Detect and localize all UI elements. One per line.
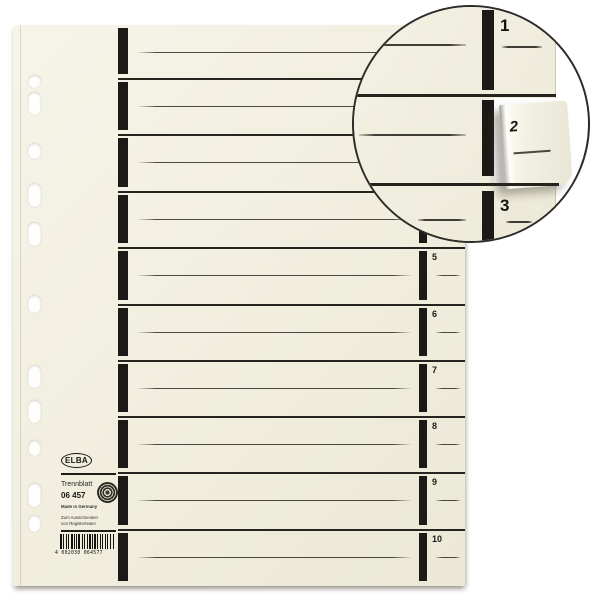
tab-label-line <box>436 444 460 445</box>
tab-number: 5 <box>432 253 437 262</box>
brand-logo: ELBA <box>61 453 92 468</box>
quality-seal-icon <box>97 482 118 503</box>
magnified-tab-bar-3 <box>482 191 494 243</box>
tab-label-line <box>436 388 460 389</box>
writing-line <box>137 332 412 333</box>
oblong-punch-hole <box>28 143 41 159</box>
oblong-punch-hole <box>28 92 41 115</box>
section-rule <box>118 529 465 531</box>
oblong-punch-hole <box>28 365 41 388</box>
writing-line <box>137 444 412 445</box>
print-divider-line-top <box>61 473 116 475</box>
peeled-tab-line <box>513 150 550 154</box>
left-tab-bar <box>118 82 128 130</box>
tab-number: 6 <box>432 310 437 319</box>
article-number: 06 457 <box>61 491 85 500</box>
round-punch-hole <box>28 515 41 532</box>
section-rule <box>118 247 465 249</box>
right-tab-bar <box>419 251 427 300</box>
section-rule <box>118 304 465 306</box>
left-tab-bar <box>118 138 128 187</box>
peeled-tab: 2 <box>499 101 573 190</box>
left-tab-bar <box>118 420 128 468</box>
peeled-tab-number-2: 2 <box>509 119 518 135</box>
round-punch-hole <box>28 440 41 456</box>
barcode <box>60 534 115 549</box>
left-tab-bar <box>118 476 128 525</box>
right-tab-bar <box>419 308 427 356</box>
right-tab-bar <box>419 476 427 525</box>
oblong-punch-hole <box>28 222 41 246</box>
magnified-writing-line <box>359 134 466 136</box>
oblong-punch-hole <box>28 400 41 423</box>
left-tab-bar <box>118 195 128 243</box>
writing-line <box>137 388 412 389</box>
brand-logo-text: ELBA <box>65 456 88 465</box>
right-tab-bar <box>419 420 427 468</box>
tab-number: 10 <box>432 535 442 544</box>
left-tab-bar <box>118 308 128 356</box>
magnified-tab-line-3 <box>506 221 532 223</box>
barcode-number: 4 002030 064577 <box>55 550 103 555</box>
product-name: Trennblatt <box>61 481 92 488</box>
magnified-writing-line <box>418 219 466 221</box>
origin-text: Made in Germany <box>61 505 97 509</box>
print-divider-line-bottom <box>61 530 116 532</box>
barcode-bar <box>113 534 114 549</box>
right-tab-bar <box>419 533 427 581</box>
writing-line <box>137 500 412 501</box>
section-rule <box>118 472 465 474</box>
oblong-punch-hole <box>28 183 41 207</box>
magnifier-circle: 1 2 3 <box>352 5 590 243</box>
magnified-tab-bar-1 <box>482 10 494 90</box>
left-tab-bar <box>118 28 128 74</box>
product-photo-stage: 12345678910 ELBA Trennblatt 06 457 Made … <box>0 0 600 600</box>
round-punch-hole <box>28 75 41 88</box>
writing-line <box>137 557 412 558</box>
usage-note-line1: Zum Ausschneiden <box>61 516 98 520</box>
oblong-punch-hole <box>28 295 41 313</box>
right-tab-bar <box>419 364 427 412</box>
magnified-section-rule-1 <box>354 94 556 97</box>
tab-number: 9 <box>432 478 437 487</box>
usage-note-line2: von Registerteilen <box>61 522 96 526</box>
magnified-tab-bar-2 <box>482 100 494 176</box>
tab-number: 7 <box>432 366 437 375</box>
magnified-tab-line-1 <box>502 46 542 48</box>
tab-label-line <box>436 332 460 333</box>
left-tab-bar <box>118 364 128 412</box>
magnified-tab-number-1: 1 <box>500 17 509 34</box>
left-tab-bar <box>118 251 128 300</box>
tab-label-line <box>436 275 460 276</box>
magnified-tab-number-3: 3 <box>500 197 509 214</box>
section-rule <box>118 360 465 362</box>
oblong-punch-hole <box>28 483 41 507</box>
magnified-section-rule-2 <box>354 183 559 186</box>
magnified-writing-line <box>360 44 466 46</box>
tab-label-line <box>436 557 460 558</box>
section-rule <box>118 416 465 418</box>
tab-number: 8 <box>432 422 437 431</box>
writing-line <box>137 275 412 276</box>
left-tab-bar <box>118 533 128 581</box>
tab-label-line <box>436 500 460 501</box>
